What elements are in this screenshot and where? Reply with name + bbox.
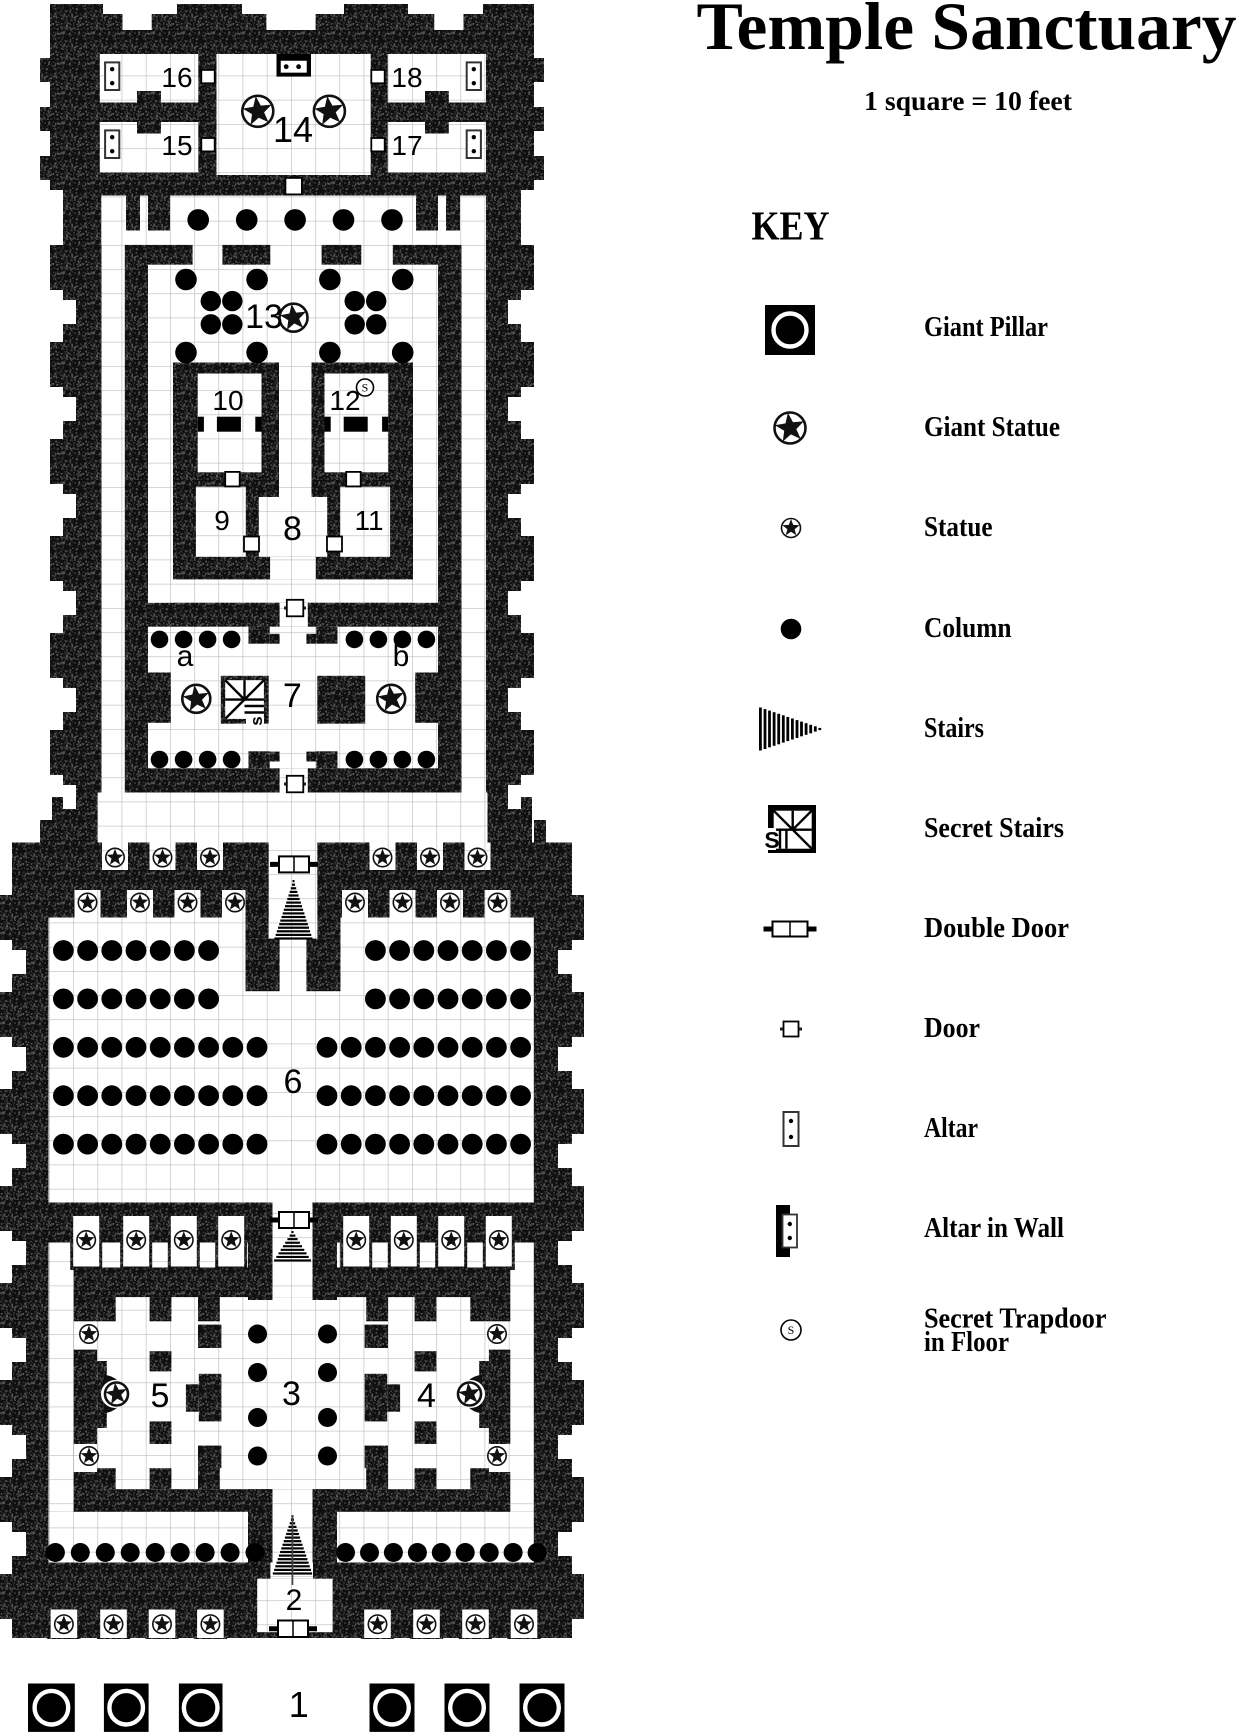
svg-text:2: 2 (286, 1584, 303, 1617)
svg-text:1 square = 10 feet: 1 square = 10 feet (864, 86, 1072, 116)
svg-text:14: 14 (273, 109, 313, 150)
svg-text:3: 3 (282, 1375, 301, 1413)
svg-text:Altar: Altar (924, 1113, 978, 1144)
svg-text:Giant Pillar: Giant Pillar (924, 312, 1048, 343)
svg-text:S: S (362, 381, 369, 395)
svg-text:Statue: Statue (924, 512, 993, 543)
svg-text:1: 1 (289, 1684, 309, 1725)
svg-text:Temple Sanctuary: Temple Sanctuary (697, 0, 1237, 64)
svg-text:8: 8 (283, 510, 302, 548)
svg-text:17: 17 (391, 130, 422, 161)
svg-text:4: 4 (417, 1377, 436, 1415)
svg-text:12: 12 (329, 385, 360, 416)
svg-text:KEY: KEY (752, 203, 830, 249)
svg-text:Door: Door (924, 1013, 980, 1044)
svg-text:18: 18 (391, 62, 422, 93)
svg-text:15: 15 (161, 130, 192, 161)
svg-text:16: 16 (161, 62, 192, 93)
svg-text:s: s (247, 716, 266, 725)
svg-text:Giant Statue: Giant Statue (924, 412, 1060, 443)
svg-text:6: 6 (284, 1063, 303, 1101)
svg-text:S: S (788, 1323, 795, 1337)
svg-text:a: a (177, 640, 194, 673)
svg-text:5: 5 (151, 1377, 170, 1415)
svg-text:Column: Column (924, 613, 1012, 644)
svg-text:13: 13 (245, 298, 283, 336)
svg-text:11: 11 (354, 505, 383, 536)
svg-text:Altar in Wall: Altar in Wall (924, 1213, 1064, 1244)
svg-text:Stairs: Stairs (924, 713, 984, 744)
svg-text:S: S (764, 827, 779, 853)
svg-text:7: 7 (283, 677, 302, 715)
svg-text:b: b (393, 640, 410, 673)
svg-text:9: 9 (214, 505, 230, 536)
svg-text:Double Door: Double Door (924, 913, 1069, 944)
svg-text:Secret Stairs: Secret Stairs (924, 813, 1064, 844)
svg-text:in Floor: in Floor (924, 1327, 1009, 1358)
svg-text:10: 10 (212, 385, 243, 416)
